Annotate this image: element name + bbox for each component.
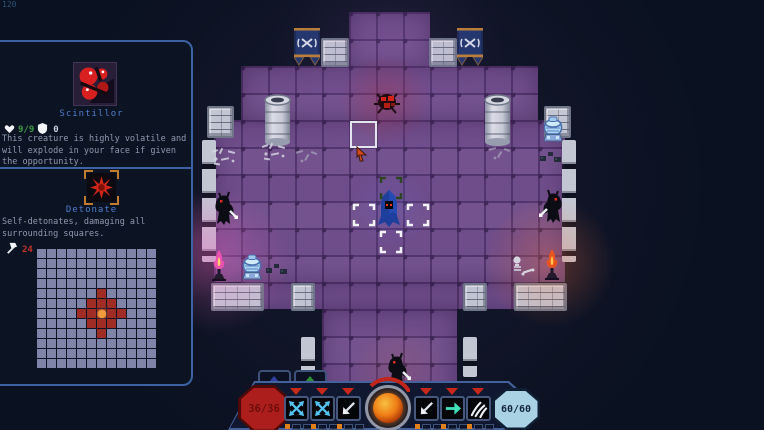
blast-grid-cell: [37, 269, 46, 278]
slot-charge-pip-empty: [422, 424, 431, 430]
blast-grid-cell: [47, 249, 56, 258]
icon-corner-bracket: [84, 170, 93, 179]
slot-selector-triangle: [342, 388, 354, 395]
blast-grid-cell: [97, 289, 106, 298]
blast-grid-cell: [137, 339, 146, 348]
blast-grid-cell: [57, 359, 66, 368]
panel-divider: [0, 167, 191, 169]
blast-grid-cell: [107, 299, 116, 308]
blast-grid-cell: [47, 289, 56, 298]
blast-grid-cell: [77, 329, 86, 338]
blast-center-orb: [98, 310, 106, 318]
blast-grid-cell: [67, 309, 76, 318]
blast-grid-cell: [67, 299, 76, 308]
player-character[interactable]: [377, 189, 402, 233]
blast-grid-cell: [87, 329, 96, 338]
blast-grid-cell: [67, 249, 76, 258]
blast-grid-cell: [117, 249, 126, 258]
ability-damage-row: 24: [4, 242, 33, 258]
target-select-square[interactable]: [350, 121, 377, 148]
debris-decal: [264, 260, 290, 280]
slot-charge-pip-empty: [318, 424, 327, 430]
icon-corner-bracket: [110, 196, 119, 205]
blast-grid-cell: [47, 299, 56, 308]
stone-wall: [429, 38, 457, 67]
blast-grid-cell: [97, 349, 106, 358]
blast-grid-cell: [127, 339, 136, 348]
ability-description: Self-detonates, damaging all surrounding…: [2, 217, 188, 240]
stone-wall: [211, 283, 264, 311]
blast-grid-cell: [47, 269, 56, 278]
slot-charge-pip-empty: [292, 424, 301, 430]
blast-grid-cell: [147, 299, 156, 308]
blast-grid-cell: [137, 249, 146, 258]
slot-charge-pip-empty: [448, 424, 457, 430]
blast-grid-cell: [117, 329, 126, 338]
blast-grid-cell: [47, 329, 56, 338]
blast-grid-cell: [77, 299, 86, 308]
blast-grid-cell: [107, 289, 116, 298]
blast-grid-cell: [87, 269, 96, 278]
blast-grid-cell: [107, 329, 116, 338]
blast-grid-cell: [87, 289, 96, 298]
map-cursor-arrow: [355, 146, 369, 166]
blast-grid-cell: [77, 269, 86, 278]
blast-grid-cell: [57, 309, 66, 318]
urn-prop[interactable]: [541, 115, 565, 147]
blast-grid-cell: [37, 309, 46, 318]
blast-grid-cell: [137, 299, 146, 308]
blast-grid-cell: [47, 359, 56, 368]
bone-decal: [294, 148, 320, 170]
blast-grid-cell: [87, 359, 96, 368]
blast-grid-cell: [87, 339, 96, 348]
stone-wall: [207, 106, 234, 138]
blast-grid-cell: [37, 329, 46, 338]
floor-region[interactable]: [241, 282, 538, 309]
blast-grid-cell: [67, 329, 76, 338]
blast-grid-cell: [57, 349, 66, 358]
blast-grid-cell: [37, 359, 46, 368]
blast-grid-cell: [137, 349, 146, 358]
level-indicator: 120: [2, 0, 16, 9]
blast-grid-cell: [97, 359, 106, 368]
blast-grid-cell: [77, 249, 86, 258]
blast-grid-cell: [147, 359, 156, 368]
blast-grid-cell: [137, 329, 146, 338]
bone-decal: [487, 145, 513, 167]
blast-grid-cell: [147, 249, 156, 258]
blast-grid-cell: [107, 339, 116, 348]
blast-grid-cell: [37, 319, 46, 328]
power-orb[interactable]: [365, 385, 411, 430]
blast-grid-cell: [57, 299, 66, 308]
hammer-icon: [4, 242, 19, 258]
slot-selector-triangle: [290, 388, 302, 395]
stone-wall: [291, 283, 315, 311]
slot-charge-pip-empty: [344, 424, 353, 430]
blast-grid-cell: [47, 259, 56, 268]
blast-grid-cell: [127, 269, 136, 278]
blast-grid-cell: [117, 269, 126, 278]
blast-grid-cell: [77, 339, 86, 348]
target-bracket: [406, 203, 430, 227]
blast-grid-cell: [57, 279, 66, 288]
blast-grid-cell: [57, 329, 66, 338]
blast-grid-cell: [37, 259, 46, 268]
blast-grid-cell: [107, 309, 116, 318]
blast-grid-cell: [47, 279, 56, 288]
blast-grid-cell: [67, 359, 76, 368]
blast-grid-cell: [87, 299, 96, 308]
blast-grid-cell: [107, 319, 116, 328]
blast-grid-cell: [37, 279, 46, 288]
blast-grid-cell: [47, 349, 56, 358]
blast-grid-cell: [147, 329, 156, 338]
blast-grid-cell: [77, 359, 86, 368]
floor-region[interactable]: [349, 12, 430, 66]
slot-charge-pip: [311, 424, 316, 429]
action-slot-cross-arrows[interactable]: [310, 396, 335, 421]
player-hp-value: 36/36: [241, 388, 288, 430]
slot-charge-pip: [285, 424, 290, 429]
blast-grid-cell: [107, 259, 116, 268]
stone-pillar: [484, 92, 511, 146]
blast-grid-cell: [117, 339, 126, 348]
blast-grid-cell: [127, 309, 136, 318]
blast-grid-cell: [127, 279, 136, 288]
blast-grid-cell: [147, 349, 156, 358]
slot-charge-pip: [415, 424, 420, 429]
stone-wall: [321, 38, 349, 67]
blast-grid-cell: [77, 259, 86, 268]
blast-grid-cell: [117, 259, 126, 268]
blast-grid-cell: [97, 329, 106, 338]
icon-corner-bracket: [84, 196, 93, 205]
icon-corner-bracket: [110, 170, 119, 179]
blast-grid-cell: [137, 269, 146, 278]
blast-grid-cell: [37, 339, 46, 348]
enemy-imp[interactable]: [538, 188, 566, 228]
player-hp-octagon[interactable]: 36/36: [238, 385, 290, 430]
blast-grid-cell: [67, 349, 76, 358]
urn-prop[interactable]: [240, 253, 264, 285]
creature-portrait: [73, 62, 117, 106]
blast-grid-cell: [127, 349, 136, 358]
slot-selector-triangle: [316, 388, 328, 395]
wall-banner: [457, 28, 483, 66]
blast-grid-cell: [117, 279, 126, 288]
blast-grid-cell: [67, 339, 76, 348]
blast-grid-cell: [77, 279, 86, 288]
stone-pillar: [264, 92, 291, 146]
bone-decal: [210, 146, 240, 172]
enemy-imp[interactable]: [211, 190, 239, 230]
slot-selector-triangle: [472, 388, 484, 395]
player-shield-value: 60/60: [495, 391, 538, 428]
blast-grid-cell: [137, 289, 146, 298]
blast-grid-cell: [117, 349, 126, 358]
slot-charge-pip: [441, 424, 446, 429]
blast-grid-cell: [117, 359, 126, 368]
action-slot-arrow-down-left[interactable]: [414, 396, 439, 421]
blast-grid-cell: [37, 249, 46, 258]
blast-grid-cell: [147, 319, 156, 328]
blast-grid-cell: [97, 269, 106, 278]
brazier-flame: [542, 248, 562, 284]
blast-grid-cell: [107, 349, 116, 358]
blast-grid-cell: [147, 279, 156, 288]
stone-wall: [463, 283, 487, 311]
blast-grid-cell: [77, 319, 86, 328]
blast-grid-cell: [87, 259, 96, 268]
blast-grid-cell: [137, 309, 146, 318]
blast-grid-cell: [67, 279, 76, 288]
blast-grid-cell: [107, 269, 116, 278]
blast-grid-cell: [107, 249, 116, 258]
player-shield-octagon[interactable]: 60/60: [492, 388, 540, 430]
blast-grid-cell: [37, 289, 46, 298]
blast-grid-cell: [57, 339, 66, 348]
blast-grid-cell: [67, 259, 76, 268]
blast-grid-cell: [127, 249, 136, 258]
action-slot-claw[interactable]: [466, 396, 491, 421]
slot-charge-pip: [337, 424, 342, 429]
action-bar: 36/36 60/60: [226, 368, 548, 430]
blast-grid-cell: [57, 319, 66, 328]
blast-grid-cell: [87, 319, 96, 328]
blast-grid-cell: [67, 289, 76, 298]
blast-grid-cell: [107, 359, 116, 368]
target-bracket: [379, 230, 403, 254]
blast-grid-cell: [67, 269, 76, 278]
blast-grid-cell: [97, 279, 106, 288]
stone-wall: [514, 283, 567, 311]
blast-grid-cell: [127, 359, 136, 368]
blast-grid-cell: [87, 279, 96, 288]
slot-charge-pip-empty: [355, 424, 364, 430]
blast-grid-cell: [137, 279, 146, 288]
wall-banner: [294, 28, 320, 66]
slot-selector-triangle: [446, 388, 458, 395]
blast-grid-cell: [87, 309, 96, 318]
blast-grid-cell: [77, 349, 86, 358]
blast-grid-cell: [87, 349, 96, 358]
blast-grid-cell: [47, 339, 56, 348]
enemy-scintillor[interactable]: [371, 88, 403, 120]
blast-grid-cell: [147, 339, 156, 348]
blast-grid-cell: [117, 299, 126, 308]
creature-description: This creature is highly volatile and wil…: [2, 134, 188, 169]
action-slot-cross-arrows[interactable]: [284, 396, 309, 421]
slot-charge-pip-empty: [474, 424, 483, 430]
blast-grid-cell: [97, 299, 106, 308]
blast-grid-cell: [57, 249, 66, 258]
bone-decal: [260, 141, 290, 167]
action-slot-arrow-right[interactable]: [440, 396, 465, 421]
blast-grid-cell: [67, 319, 76, 328]
blast-grid-cell: [57, 269, 66, 278]
blast-grid-cell: [47, 309, 56, 318]
blast-grid-cell: [107, 279, 116, 288]
slot-charge-pip-empty: [485, 424, 494, 430]
blast-pattern-grid: [37, 249, 157, 369]
blast-grid-cell: [147, 259, 156, 268]
slot-selector-triangle: [420, 388, 432, 395]
power-orb-core: [373, 393, 403, 423]
blast-grid-cell: [37, 299, 46, 308]
blast-grid-cell: [147, 269, 156, 278]
blast-grid-cell: [77, 289, 86, 298]
blast-grid-cell: [37, 349, 46, 358]
debris-decal: [538, 148, 564, 168]
blast-grid-cell: [127, 329, 136, 338]
blast-grid-cell: [97, 259, 106, 268]
blast-grid-cell: [137, 259, 146, 268]
blast-grid-cell: [117, 319, 126, 328]
brazier-flame: [209, 249, 229, 285]
creature-info-panel: Scintillor 9/9 0 This creature is highly…: [0, 40, 193, 386]
blast-grid-cell: [47, 319, 56, 328]
blast-grid-cell: [127, 299, 136, 308]
action-slot-arrow-down-left[interactable]: [336, 396, 361, 421]
blast-grid-cell: [57, 289, 66, 298]
ability-damage-value: 24: [22, 245, 33, 255]
blast-grid-cell: [97, 319, 106, 328]
blast-grid-cell: [57, 259, 66, 268]
blast-grid-cell: [127, 289, 136, 298]
blast-grid-cell: [97, 339, 106, 348]
blast-grid-cell: [117, 309, 126, 318]
blast-grid-cell: [137, 319, 146, 328]
ability-name: Detonate: [0, 205, 191, 215]
blast-grid-cell: [147, 309, 156, 318]
blast-grid-cell: [77, 309, 86, 318]
blast-grid-cell: [137, 359, 146, 368]
detonate-ability-icon[interactable]: [87, 173, 116, 202]
blast-grid-cell: [87, 249, 96, 258]
blast-grid-cell: [147, 289, 156, 298]
skeleton-decal: [510, 253, 536, 283]
blast-grid-cell: [117, 289, 126, 298]
game-scene: 120 Scintillor 9/9 0 This creature is hi…: [0, 0, 764, 430]
slot-charge-pip: [467, 424, 472, 429]
target-bracket: [352, 203, 376, 227]
blast-grid-cell: [97, 249, 106, 258]
creature-name: Scintillor: [0, 109, 191, 119]
blast-grid-cell: [127, 259, 136, 268]
blast-grid-cell: [127, 319, 136, 328]
